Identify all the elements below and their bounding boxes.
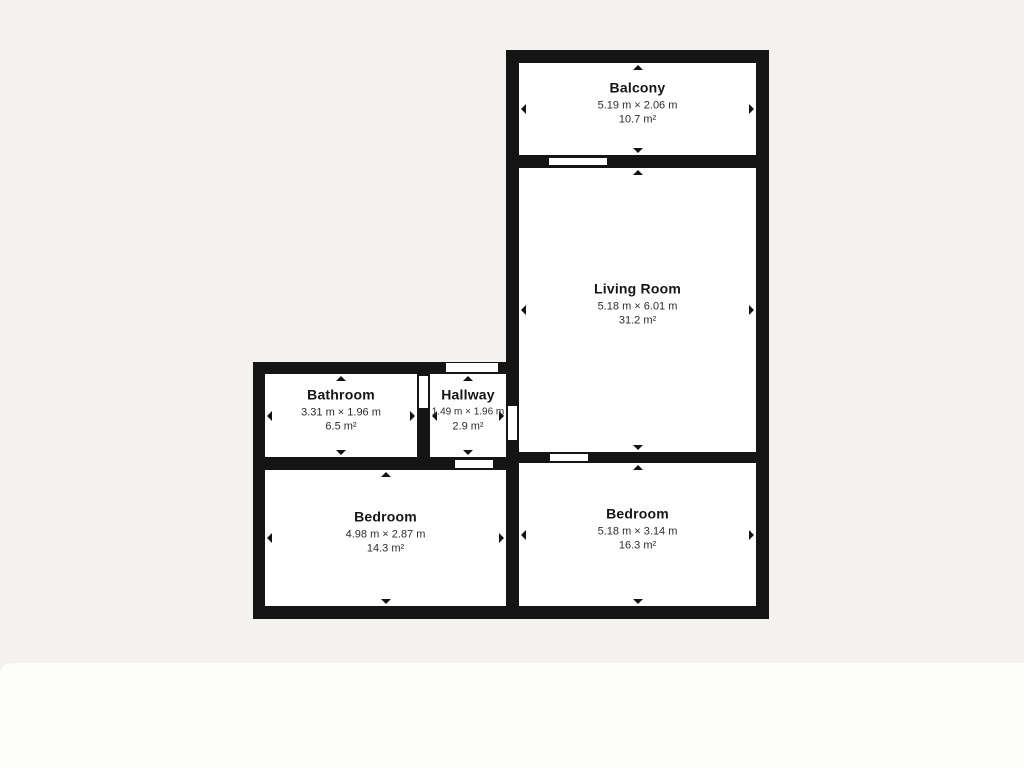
room-dimensions: 4.98 m × 2.87 m <box>346 528 426 542</box>
wall-arrow-up-icon <box>633 170 643 175</box>
wall-arrow-left-icon <box>521 530 526 540</box>
wall-arrow-up-icon <box>463 376 473 381</box>
wall-arrow-down-icon <box>336 450 346 455</box>
room-dimensions: 5.18 m × 3.14 m <box>598 524 678 538</box>
wall-arrow-down-icon <box>381 599 391 604</box>
room-dimensions: 3.31 m × 1.96 m <box>301 405 381 419</box>
wall-arrow-left-icon <box>521 305 526 315</box>
wall-arrow-down-icon <box>633 599 643 604</box>
door-opening-bathroom-hallway <box>419 376 428 408</box>
room-name: Living Room <box>594 281 681 298</box>
room-area: 6.5 m² <box>301 419 381 433</box>
room-bathroom: Bathroom 3.31 m × 1.96 m 6.5 m² <box>265 374 417 457</box>
room-name: Bedroom <box>346 509 426 526</box>
wall-arrow-down-icon <box>633 445 643 450</box>
room-balcony: Balcony 5.19 m × 2.06 m 10.7 m² <box>519 63 756 155</box>
window-opening-hallway-exterior <box>446 363 498 372</box>
wall-arrow-right-icon <box>410 411 415 421</box>
room-dimensions: 1.49 m × 1.96 m <box>432 405 505 419</box>
room-area: 31.2 m² <box>594 314 681 328</box>
wall-arrow-up-icon <box>381 472 391 477</box>
door-opening-hallway-bedroom <box>455 460 493 468</box>
room-area: 16.3 m² <box>598 538 678 552</box>
wall-arrow-right-icon <box>749 305 754 315</box>
room-label: Bedroom 5.18 m × 3.14 m 16.3 m² <box>598 505 678 552</box>
wall-arrow-right-icon <box>749 530 754 540</box>
room-living-room: Living Room 5.18 m × 6.01 m 31.2 m² <box>519 168 756 452</box>
wall-arrow-left-icon <box>521 104 526 114</box>
room-dimensions: 5.19 m × 2.06 m <box>598 99 678 113</box>
room-area: 14.3 m² <box>346 542 426 556</box>
room-name: Balcony <box>598 80 678 97</box>
room-bedroom-right: Bedroom 5.18 m × 3.14 m 16.3 m² <box>519 463 756 606</box>
room-label: Hallway 1.49 m × 1.96 m 2.9 m² <box>432 386 505 433</box>
room-dimensions: 5.18 m × 6.01 m <box>594 300 681 314</box>
room-area: 10.7 m² <box>598 113 678 127</box>
wall-arrow-left-icon <box>267 411 272 421</box>
door-opening-hallway-living <box>508 406 517 440</box>
window-opening-balcony-living <box>549 158 607 165</box>
room-area: 2.9 m² <box>432 419 505 433</box>
room-name: Hallway <box>432 386 505 403</box>
wall-arrow-up-icon <box>633 65 643 70</box>
floor-plan: Balcony 5.19 m × 2.06 m 10.7 m² Living R… <box>0 0 1024 768</box>
wall-arrow-up-icon <box>336 376 346 381</box>
wall-arrow-right-icon <box>749 104 754 114</box>
room-bedroom-left: Bedroom 4.98 m × 2.87 m 14.3 m² <box>265 470 506 606</box>
door-opening-living-bedroom <box>550 454 588 461</box>
room-hallway: Hallway 1.49 m × 1.96 m 2.9 m² <box>430 374 506 457</box>
wall-arrow-up-icon <box>633 465 643 470</box>
room-label: Bedroom 4.98 m × 2.87 m 14.3 m² <box>346 509 426 556</box>
room-label: Balcony 5.19 m × 2.06 m 10.7 m² <box>598 80 678 127</box>
room-label: Living Room 5.18 m × 6.01 m 31.2 m² <box>594 281 681 328</box>
room-name: Bedroom <box>598 505 678 522</box>
room-name: Bathroom <box>301 386 381 403</box>
wall-arrow-left-icon <box>267 533 272 543</box>
room-label: Bathroom 3.31 m × 1.96 m 6.5 m² <box>301 386 381 433</box>
wall-arrow-right-icon <box>499 533 504 543</box>
floorplan-canvas: Balcony 5.19 m × 2.06 m 10.7 m² Living R… <box>0 0 1024 768</box>
wall-arrow-down-icon <box>463 450 473 455</box>
wall-arrow-down-icon <box>633 148 643 153</box>
